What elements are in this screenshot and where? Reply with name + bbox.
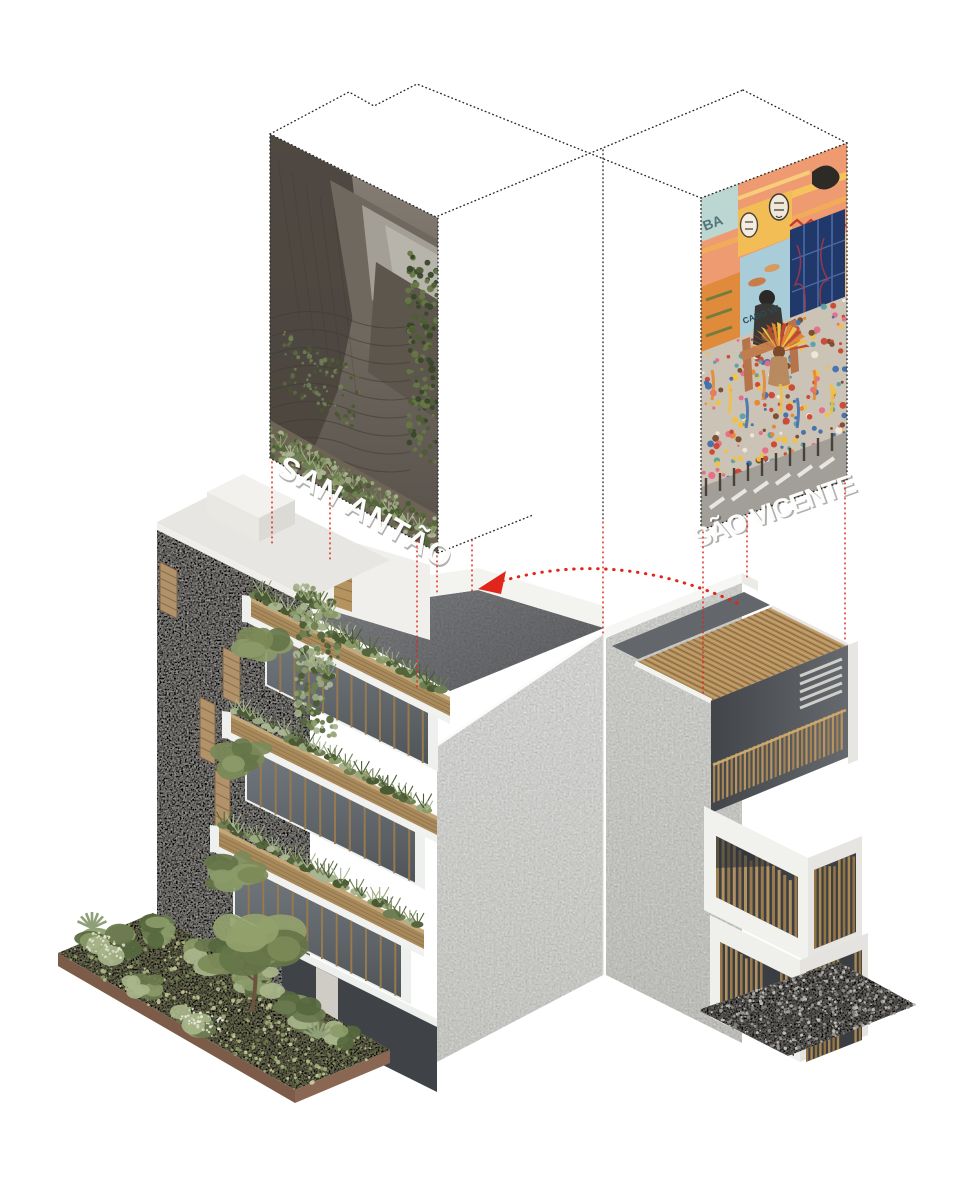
right-building-sao-vicente-house — [604, 573, 916, 1066]
left-building-san-antao-house — [58, 474, 604, 1103]
mountain-photo-panel: SAN ANTÃO SAN ANTÃO — [268, 134, 460, 578]
mural-photo-panel: BA CABO VE SÃO VICENTE SÃO VICENTE — [689, 143, 864, 555]
volume-right-top-edge — [743, 90, 847, 143]
party-wall — [437, 633, 603, 1062]
axonometric-diagram: SAN ANTÃO SAN ANTÃO — [0, 0, 962, 1200]
diagram-canvas: SAN ANTÃO SAN ANTÃO — [0, 0, 962, 1200]
